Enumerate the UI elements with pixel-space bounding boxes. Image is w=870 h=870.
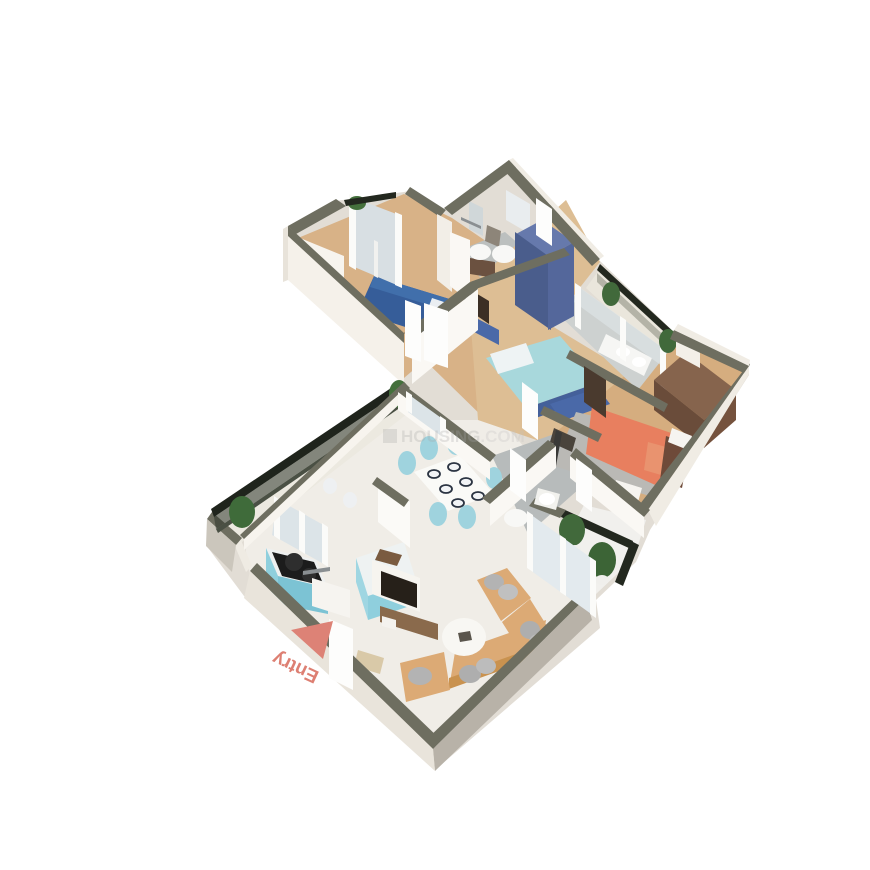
svg-text:HOUSING.COM: HOUSING.COM <box>401 427 525 446</box>
